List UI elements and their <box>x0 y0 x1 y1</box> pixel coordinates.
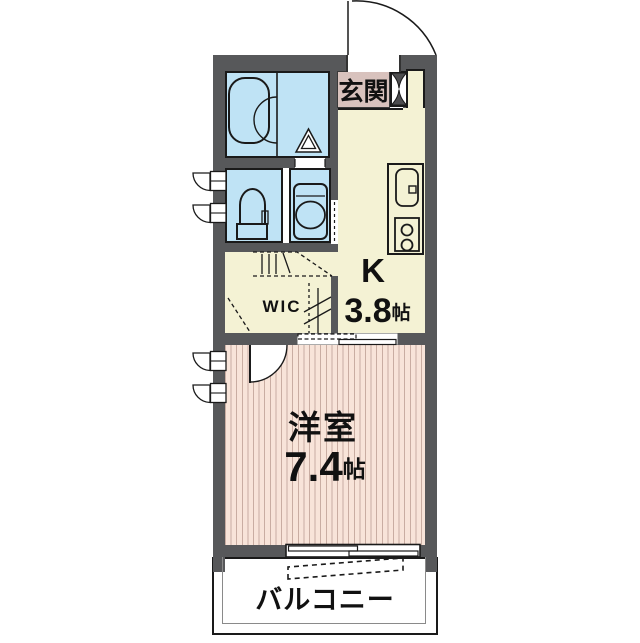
kitchen-size-unit: 帖 <box>392 298 411 325</box>
wic-label: WIC <box>252 295 312 319</box>
wall-top <box>213 55 437 72</box>
entrance-door-opening <box>346 55 401 72</box>
wall-left <box>213 55 225 572</box>
main-room-size: 7.4帖 <box>250 443 400 491</box>
main-room-label: 洋室 <box>255 405 391 445</box>
floor-plan: 玄関 K 3.8帖 WIC 洋室 7.4帖 バルコニー <box>0 0 640 643</box>
main-room-size-value: 7.4 <box>284 443 342 491</box>
toilet-room <box>225 168 283 243</box>
bath-door-opening <box>295 158 325 168</box>
storage-box <box>406 69 425 112</box>
kitchen-label: K <box>343 252 403 290</box>
balcony-label: バルコニー <box>235 580 415 614</box>
washroom <box>289 168 331 243</box>
wic-floor <box>225 252 331 333</box>
main-room-size-unit: 帖 <box>343 450 366 484</box>
entrance-door-swing-icon <box>348 1 436 55</box>
kitchen-counter <box>387 163 424 255</box>
wall-gap-toilet-wash <box>283 168 289 243</box>
bathroom <box>225 71 330 158</box>
wall-room-top <box>213 333 437 345</box>
wall-right <box>425 55 437 572</box>
kitchen-size-value: 3.8 <box>344 292 391 331</box>
kitchen-size: 3.8帖 <box>330 293 425 329</box>
washroom-door-opening <box>331 200 338 244</box>
wic-kitchen-opening <box>331 252 338 276</box>
entrance-label: 玄関 <box>337 73 390 106</box>
wall-under-toilet <box>225 243 331 252</box>
